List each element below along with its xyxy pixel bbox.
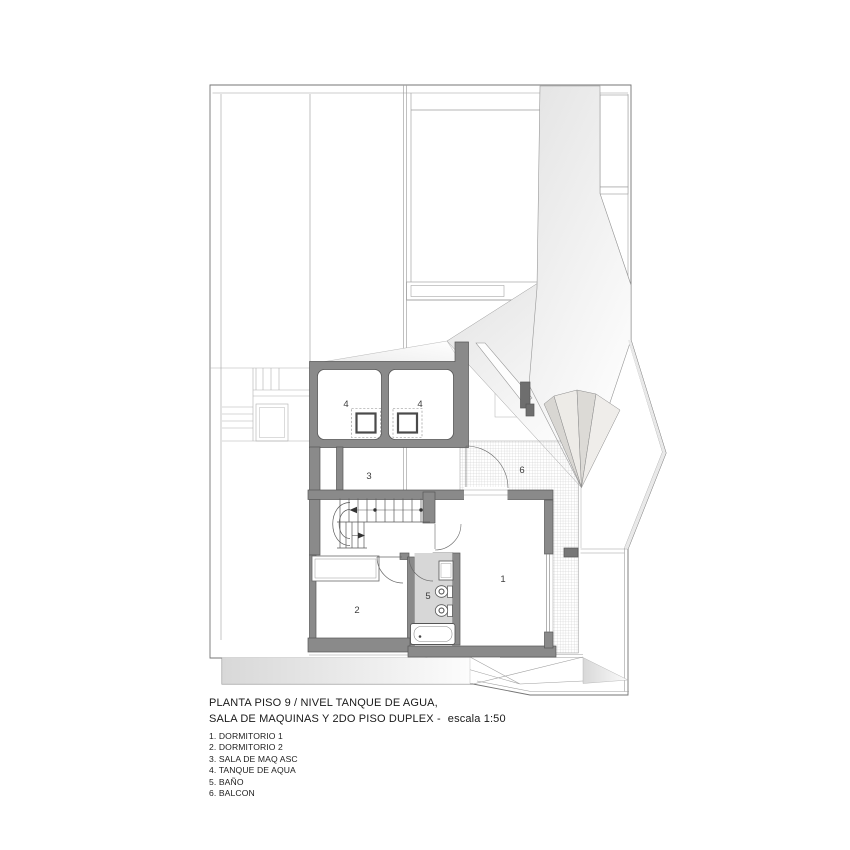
door-dormitorio2	[377, 557, 403, 583]
legend-item: 1. DORMITORIO 1	[209, 731, 506, 742]
legend: 1. DORMITORIO 1 2. DORMITORIO 2 3. SALA …	[209, 731, 506, 799]
window-lines	[547, 554, 550, 632]
wardrobe	[312, 556, 379, 581]
stairs	[333, 499, 430, 549]
bathroom-fixtures	[411, 553, 456, 645]
bathtub	[411, 624, 456, 645]
plan-title-line2-text: SALA DE MAQUINAS Y 2DO PISO DUPLEX -	[209, 713, 441, 725]
legend-item: 2. DORMITORIO 2	[209, 742, 506, 753]
room-label-tank-2: 4	[417, 399, 422, 410]
toilet	[435, 605, 452, 617]
title-block: PLANTA PISO 9 / NIVEL TANQUE DE AGUA, SA…	[209, 695, 506, 799]
scale-note: escala 1:50	[448, 713, 506, 725]
plan-title-line1: PLANTA PISO 9 / NIVEL TANQUE DE AGUA,	[209, 695, 506, 711]
room-label-dormitorio-1: 1	[500, 574, 505, 585]
plan-title-line2: SALA DE MAQUINAS Y 2DO PISO DUPLEX -esca…	[209, 711, 506, 727]
legend-item: 5. BAÑO	[209, 777, 506, 788]
room-label-bano: 5	[425, 591, 430, 602]
room-label-sala-maq: 3	[366, 471, 371, 482]
door-dormitorio1	[435, 524, 461, 550]
legend-item: 4. TANQUE DE AQUA	[209, 765, 506, 776]
toilet	[435, 586, 452, 598]
legend-item: 6. BALCON	[209, 788, 506, 799]
room-label-tank-1: 4	[343, 399, 348, 410]
legend-item: 3. SALA DE MAQ ASC	[209, 754, 506, 765]
room-label-balcon: 6	[519, 465, 524, 476]
floor-plan-page: 4 4 3 6 1 2 5 PLANTA PISO 9 / NIVEL TANQ…	[0, 0, 850, 850]
room-label-dormitorio-2: 2	[354, 605, 359, 616]
